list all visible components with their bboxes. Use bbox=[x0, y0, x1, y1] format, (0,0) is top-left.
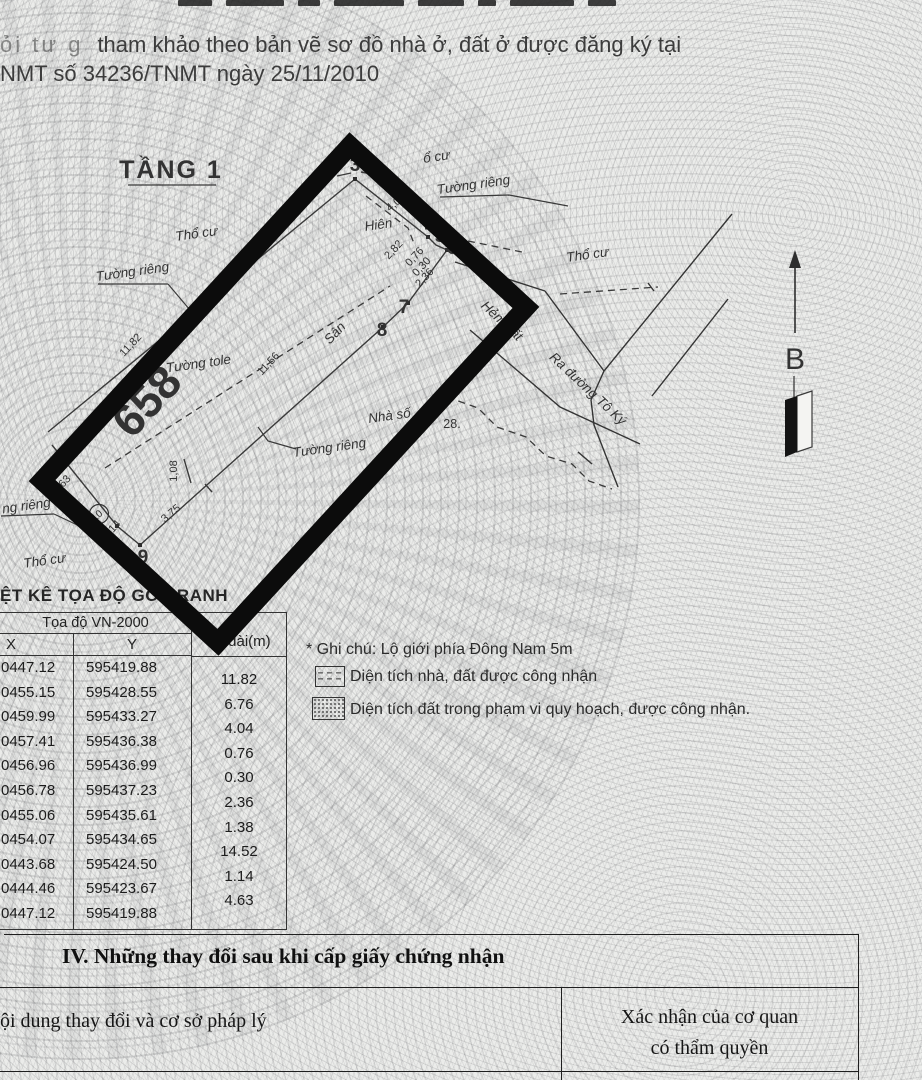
vertex-5: 5 bbox=[435, 226, 446, 247]
coord-x-value: 0454.07 bbox=[0, 828, 73, 853]
coord-row: 0456.78595437.23 bbox=[0, 779, 191, 804]
coord-x-value: 0456.78 bbox=[0, 779, 73, 804]
label-hien: Hiên bbox=[364, 215, 394, 234]
coord-table-length-column: ều dài(m) 11.826.764.040.760.302.361.381… bbox=[192, 613, 286, 929]
vertex-6: 6 bbox=[447, 238, 458, 259]
ghi-chu-note: * Ghi chú: Lộ giới phía Đông Nam 5m bbox=[306, 641, 573, 659]
col-header-y: Y bbox=[73, 634, 191, 656]
segment-length-value: 6.76 bbox=[192, 693, 286, 718]
dim-2-82: 2,82 bbox=[382, 238, 405, 262]
legend-label-recognized-area: Diện tích nhà, đất được công nhận bbox=[350, 668, 597, 686]
dim-4-63: 4,63 bbox=[50, 473, 73, 497]
coord-y-value: 595437.23 bbox=[73, 779, 157, 804]
legend-box-planning-area bbox=[312, 697, 345, 720]
coord-table-title: ỆT KÊ TỌA ĐỘ GÓC RANH bbox=[0, 586, 228, 606]
vertex-8: 8 bbox=[377, 320, 388, 341]
section-iv-row-border bbox=[0, 1071, 858, 1072]
coord-row: 0447.12595419.88 bbox=[0, 902, 191, 927]
segment-length-value: 14.52 bbox=[192, 840, 286, 865]
label-tuong-rieng-mid: Tường riêng bbox=[292, 435, 368, 460]
label-tuong-rieng-topleft: Tường riêng bbox=[95, 259, 171, 284]
coord-x-value: 0444.46 bbox=[0, 877, 73, 902]
col-header-x: X bbox=[0, 634, 73, 656]
coord-table-xy-columns: Tọa độ VN-2000 X Y 0447.12595419.880455.… bbox=[0, 613, 192, 929]
north-arrow-head bbox=[789, 250, 801, 268]
coord-x-value: 0455.06 bbox=[0, 804, 73, 829]
coord-y-value: 595436.99 bbox=[73, 754, 157, 779]
section-iv-col-confirm: Xác nhận của cơ quan có thẩm quyền bbox=[561, 1002, 858, 1064]
note-line-1-cut-prefix: ỏi tư g bbox=[0, 32, 83, 57]
coord-row: 0457.41595436.38 bbox=[0, 730, 191, 755]
label-tuong-rieng-topright: Tường riêng bbox=[436, 172, 512, 197]
legend-box-recognized-area bbox=[315, 666, 345, 687]
section-iv-top-border bbox=[4, 934, 858, 935]
label-tho-cu-topleft: Thổ cư bbox=[174, 223, 219, 244]
dim-6-76: 6,76 bbox=[272, 203, 296, 226]
north-pennant-outline bbox=[797, 391, 812, 452]
segment-length-value: 11.82 bbox=[192, 668, 286, 693]
label-tho-cu-right: Thổ cư bbox=[565, 244, 610, 265]
segment-length-value: 1.14 bbox=[192, 865, 286, 890]
dim-1-08: 1,08 bbox=[168, 460, 180, 481]
note-line-1-text: tham khảo theo bản vẽ sơ đồ nhà ở, đất ở… bbox=[97, 32, 681, 57]
dim-11-56: 11,56 bbox=[255, 350, 282, 378]
coord-y-value: 595435.61 bbox=[73, 804, 157, 829]
segment-length-value: 1.38 bbox=[192, 816, 286, 841]
label-tho-cu-partial: ổ cư bbox=[422, 147, 452, 166]
note-line-1: ỏi tư gtham khảo theo bản vẽ sơ đồ nhà ở… bbox=[0, 32, 860, 58]
north-arrow: B bbox=[785, 250, 812, 457]
coord-x-value: 0459.99 bbox=[0, 705, 73, 730]
north-pennant-black bbox=[785, 396, 797, 457]
note-line-2: NMT số 34236/TNMT ngày 25/11/2010 bbox=[0, 61, 600, 87]
coord-y-value: 595424.50 bbox=[73, 853, 157, 878]
label-ra-duong-to-ky: Ra đường Tô Ký bbox=[547, 349, 631, 429]
coord-y-value: 595419.88 bbox=[73, 902, 157, 927]
segment-length-value: 4.63 bbox=[192, 889, 286, 914]
coord-row: 0455.06595435.61 bbox=[0, 804, 191, 829]
segment-length-value: 0.30 bbox=[192, 766, 286, 791]
coord-xy-header-row: X Y bbox=[0, 634, 191, 656]
coord-system-header: Tọa độ VN-2000 bbox=[0, 613, 191, 634]
vertex-9: 9 bbox=[138, 547, 149, 568]
coord-x-value: 0455.15 bbox=[0, 681, 73, 706]
section-iv-header-border bbox=[0, 987, 858, 988]
coord-y-value: 595423.67 bbox=[73, 877, 157, 902]
label-hem-dat: Hẻm đất bbox=[478, 298, 526, 345]
segment-length-value: 0.76 bbox=[192, 742, 286, 767]
north-label: B bbox=[785, 343, 805, 376]
coord-rows: 0447.12595419.880455.15595428.550459.995… bbox=[0, 656, 191, 927]
label-nha-so-value: 28. bbox=[443, 417, 460, 431]
segment-length-value: 4.04 bbox=[192, 717, 286, 742]
section-iv-right-border bbox=[858, 934, 859, 1080]
label-nha-so: Nhà số bbox=[367, 405, 413, 426]
legend-label-planning-area: Diện tích đất trong phạm vi quy hoạch, đ… bbox=[350, 701, 750, 719]
coord-x-value: 0456.96 bbox=[0, 754, 73, 779]
label-tho-cu-bottomleft: Thổ cư bbox=[22, 550, 67, 571]
floor-title: TẦNG 1 bbox=[119, 155, 223, 184]
coord-table: Tọa độ VN-2000 X Y 0447.12595419.880455.… bbox=[0, 612, 287, 930]
section-iv-col-content: ội dung thay đổi và cơ sở pháp lý bbox=[0, 1010, 267, 1033]
coord-row: 0459.99595433.27 bbox=[0, 705, 191, 730]
confirm-line-2: có thẩm quyền bbox=[561, 1033, 858, 1064]
coord-row: 0454.07595434.65 bbox=[0, 828, 191, 853]
dim-11-82: 11,82 bbox=[117, 331, 144, 359]
coord-x-value: 0447.12 bbox=[0, 656, 73, 681]
scanned-land-certificate-page: ỏi tư gtham khảo theo bản vẽ sơ đồ nhà ở… bbox=[0, 0, 922, 1080]
coord-x-value: 0447.12 bbox=[0, 902, 73, 927]
coord-y-value: 595433.27 bbox=[73, 705, 157, 730]
confirm-line-1: Xác nhận của cơ quan bbox=[561, 1002, 858, 1033]
coord-lengths: 11.826.764.040.760.302.361.3814.521.144.… bbox=[192, 668, 286, 914]
label-tuong-rieng-cut: ng riêng bbox=[1, 495, 52, 517]
length-header-underline bbox=[192, 656, 286, 657]
vertex-3: 3 bbox=[350, 155, 361, 176]
coord-row: 0447.12595419.88 bbox=[0, 656, 191, 681]
coord-row: 0455.15595428.55 bbox=[0, 681, 191, 706]
dim-1-14: 1,14 bbox=[100, 518, 123, 542]
coord-y-value: 595428.55 bbox=[73, 681, 157, 706]
vertex-10: 10 bbox=[90, 508, 106, 524]
col-header-length: ều dài(m) bbox=[192, 633, 286, 650]
coord-y-value: 595436.38 bbox=[73, 730, 157, 755]
vertex-7: 7 bbox=[399, 297, 410, 318]
segment-length-value: 2.36 bbox=[192, 791, 286, 816]
coord-row: 0444.46595423.67 bbox=[0, 877, 191, 902]
coord-y-value: 595434.65 bbox=[73, 828, 157, 853]
coord-row: 0443.68595424.50 bbox=[0, 853, 191, 878]
label-tuong-tole: Tường tole bbox=[165, 352, 232, 376]
coord-y-value: 595419.88 bbox=[73, 656, 157, 681]
coord-row: 0456.96595436.99 bbox=[0, 754, 191, 779]
section-iv-title: IV. Những thay đổi sau khi cấp giấy chứn… bbox=[62, 944, 504, 969]
coord-x-value: 0443.68 bbox=[0, 853, 73, 878]
top-edge-cut-text-fragments bbox=[178, 0, 616, 6]
label-san: Sân bbox=[321, 319, 348, 347]
coord-x-value: 0457.41 bbox=[0, 730, 73, 755]
dim-3-75: 3,75 bbox=[159, 502, 183, 525]
